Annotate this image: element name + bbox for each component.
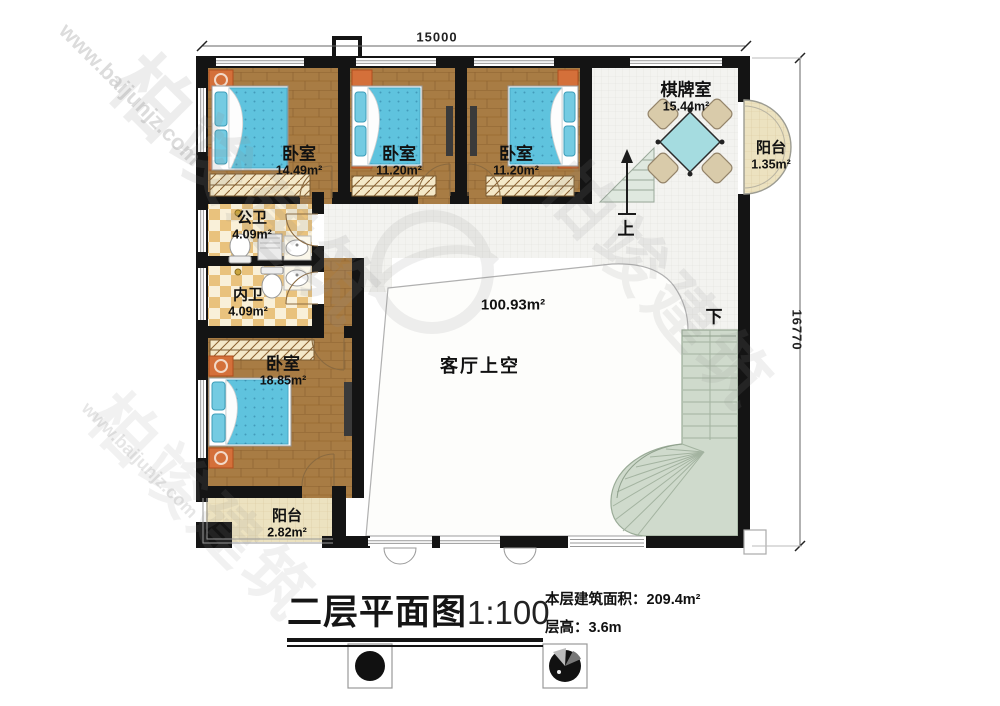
room-area: 18.85m² bbox=[260, 374, 307, 388]
room-area: 15.44m² bbox=[661, 100, 712, 114]
title-underline-thin bbox=[287, 645, 543, 647]
room-name: 卧室 bbox=[276, 144, 323, 163]
title-underline-thick bbox=[287, 638, 543, 642]
room-label-bath-private: 内卫 4.09m² bbox=[228, 288, 268, 319]
info-block: 本层建筑面积：209.4m² 层高：3.6m bbox=[545, 588, 701, 637]
title-block: 二层平面图1:100 bbox=[287, 584, 550, 647]
compass-icon bbox=[543, 644, 587, 688]
room-name: 卧室 bbox=[376, 144, 422, 163]
legend-symbol-dot bbox=[348, 644, 392, 688]
room-label-bedroom2: 卧室 11.20m² bbox=[376, 144, 422, 177]
room-name: 阳台 bbox=[751, 141, 791, 158]
floor-area-text: 本层建筑面积：209.4m² bbox=[545, 588, 701, 609]
dimension-top: 15000 bbox=[416, 30, 457, 45]
room-area: 4.09m² bbox=[232, 227, 272, 241]
living-void-area: 100.93m² bbox=[481, 297, 545, 314]
room-label-chess: 棋牌室 15.44m² bbox=[661, 80, 712, 113]
room-name: 棋牌室 bbox=[661, 80, 712, 99]
drawing-scale: 1:100 bbox=[467, 594, 550, 631]
room-label-bath-public: 公卫 4.09m² bbox=[232, 211, 272, 242]
room-name: 内卫 bbox=[228, 288, 268, 305]
room-area: 11.20m² bbox=[493, 164, 539, 178]
stair-up-label: 上 bbox=[618, 215, 635, 240]
room-label-bedroom4: 卧室 18.85m² bbox=[260, 354, 307, 387]
room-area: 2.82m² bbox=[267, 525, 307, 539]
room-area: 14.49m² bbox=[276, 164, 323, 178]
room-name: 卧室 bbox=[493, 144, 539, 163]
room-label-balcony-bottom: 阳台 2.82m² bbox=[267, 509, 307, 540]
room-name: 公卫 bbox=[232, 211, 272, 228]
living-void-name: 客厅上空 bbox=[440, 352, 520, 378]
room-label-balcony-right: 阳台 1.35m² bbox=[751, 141, 791, 172]
room-name: 阳台 bbox=[267, 509, 307, 526]
floor-height-text: 层高：3.6m bbox=[545, 616, 701, 637]
room-label-bedroom3: 卧室 11.20m² bbox=[493, 144, 539, 177]
room-area: 1.35m² bbox=[751, 157, 791, 171]
stair-down-label: 下 bbox=[706, 303, 723, 328]
floorplan-page: www.baijunjz.com 柏竣建筑 柏竣建筑 柏竣建筑 www.baij… bbox=[0, 0, 1000, 706]
room-area: 4.09m² bbox=[228, 304, 268, 318]
room-name: 卧室 bbox=[260, 354, 307, 373]
room-area: 11.20m² bbox=[376, 164, 422, 178]
dimension-right: 16770 bbox=[790, 309, 805, 350]
room-label-bedroom1: 卧室 14.49m² bbox=[276, 144, 323, 177]
page-title: 二层平面图 bbox=[287, 593, 467, 632]
